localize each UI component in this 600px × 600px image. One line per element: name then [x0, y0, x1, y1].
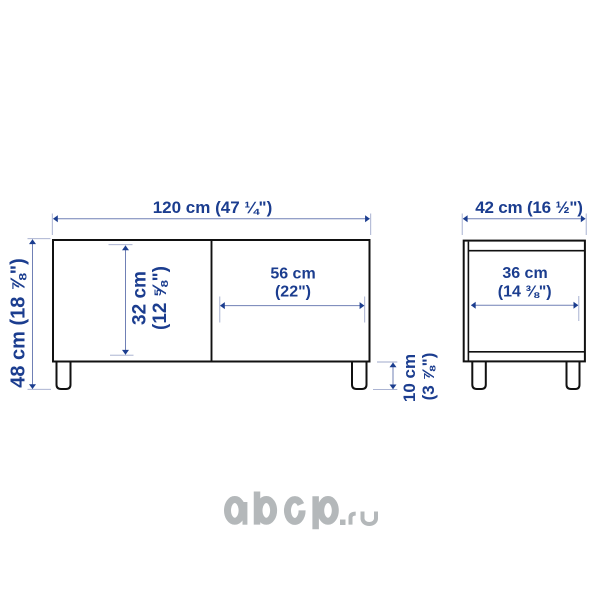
svg-text:(14 ⅜"): (14 ⅜"): [498, 284, 552, 301]
svg-text:10 cm: 10 cm: [400, 354, 419, 402]
svg-text:36 cm: 36 cm: [502, 265, 547, 282]
svg-text:48 cm (18 ⅞"): 48 cm (18 ⅞"): [8, 258, 30, 388]
svg-text:(3 ⅞"): (3 ⅞"): [419, 353, 438, 401]
svg-text:(12 ⅝"): (12 ⅝"): [150, 266, 171, 330]
svg-text:120 cm (47 ¼"): 120 cm (47 ¼"): [153, 198, 273, 217]
svg-text:32 cm: 32 cm: [130, 271, 151, 325]
svg-text:56 cm: 56 cm: [270, 266, 315, 283]
svg-text:42 cm (16 ½"): 42 cm (16 ½"): [475, 198, 583, 217]
svg-text:(22"): (22"): [275, 284, 311, 301]
